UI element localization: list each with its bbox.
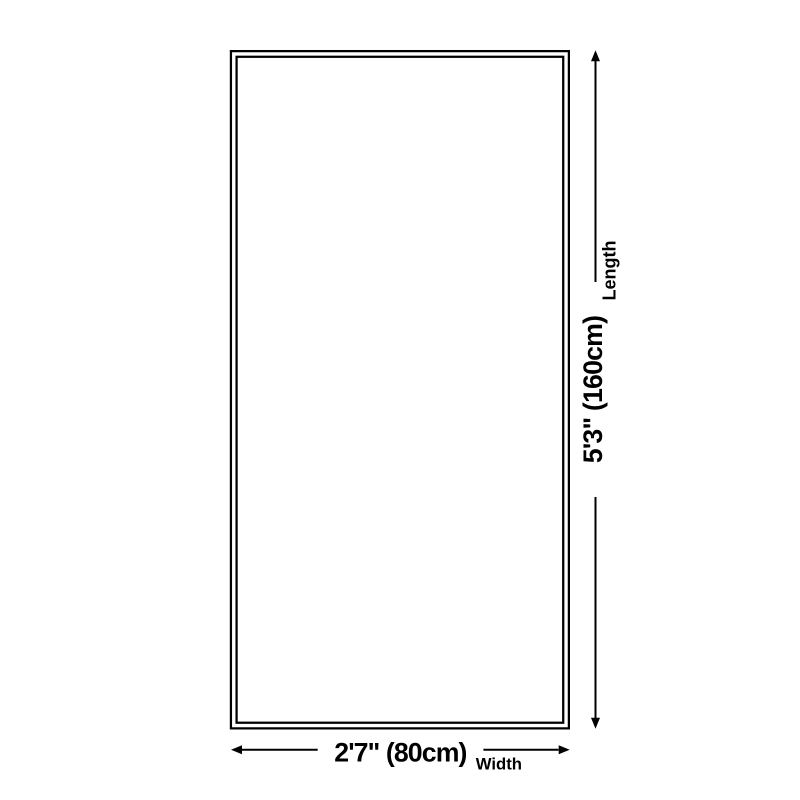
svg-text:2'7" (80cm): 2'7" (80cm) — [334, 738, 466, 768]
svg-text:Length: Length — [600, 241, 620, 301]
svg-text:5'3" (160cm): 5'3" (160cm) — [578, 316, 608, 463]
svg-text:Width: Width — [476, 755, 522, 774]
